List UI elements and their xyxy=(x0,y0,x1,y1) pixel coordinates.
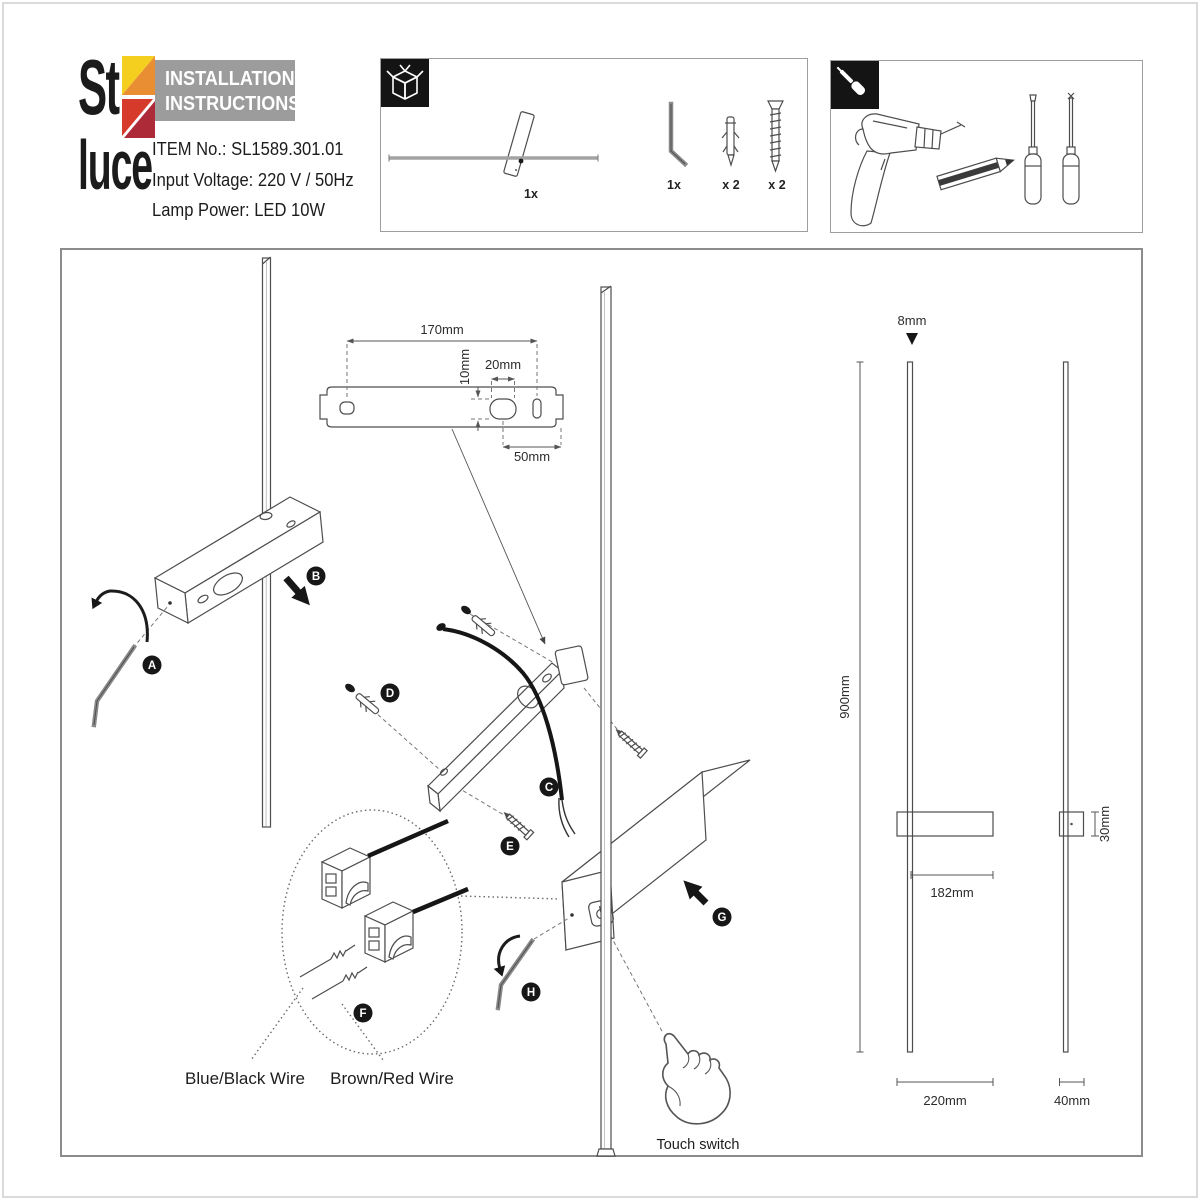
step-label-g: G xyxy=(713,908,732,927)
lamp-illustration xyxy=(389,111,598,176)
step-label-b: B xyxy=(307,567,326,586)
rod-diameter-dim: 8mm xyxy=(898,313,927,328)
power-row: Lamp Power: LED 10W xyxy=(152,195,354,226)
arrow-step-g xyxy=(694,891,706,903)
svg-text:B: B xyxy=(312,571,320,583)
item-number-row: ITEM No.: SL1589.301.01 xyxy=(152,134,354,165)
wall-plug-qty: x 2 xyxy=(722,178,739,192)
pencil-illustration xyxy=(937,154,1016,190)
product-info: ITEM No.: SL1589.301.01 Input Voltage: 2… xyxy=(152,134,371,226)
bracket-hole-width-dim: 20mm xyxy=(485,357,521,372)
bracket-width-dim: 170mm xyxy=(420,322,463,337)
drill-illustration xyxy=(851,114,965,226)
lamp-height-dim: 900mm xyxy=(837,675,852,718)
lamp-qty: 1x xyxy=(524,187,538,201)
hand-illustration xyxy=(663,1034,730,1124)
svg-text:H: H xyxy=(527,987,535,999)
lamp-body-step-ab xyxy=(133,497,323,648)
bracket-top-view: 170mm 10mm 20mm 50mm xyxy=(320,322,563,644)
package-contents-drawing: 1x 1x x 2 x 2 xyxy=(381,59,809,233)
touch-switch-label: Touch switch xyxy=(656,1137,739,1153)
svg-text:F: F xyxy=(359,1008,366,1020)
power-value: LED 10W xyxy=(254,200,325,220)
allen-key-step-a xyxy=(94,591,147,725)
arrow-step-b xyxy=(286,578,300,594)
logo-text-top: St xyxy=(78,52,118,124)
package-contents-panel: 1x 1x x 2 x 2 xyxy=(380,58,808,232)
wall-rod xyxy=(597,286,615,1156)
step-label-d: D xyxy=(381,684,400,703)
step-label-f: F xyxy=(354,1004,373,1023)
item-label: ITEM No.: xyxy=(152,139,227,159)
instructions-header: INSTALLATION INSTRUCTIONS xyxy=(155,60,295,121)
lamp-body-step-gh xyxy=(534,760,750,1033)
side-depth-dim: 40mm xyxy=(1054,1093,1090,1108)
svg-text:G: G xyxy=(718,912,727,924)
stripped-wire-2 xyxy=(312,967,367,999)
blue-black-wire-label: Blue/Black Wire xyxy=(185,1069,305,1088)
allen-key-qty: 1x xyxy=(667,178,681,192)
tools-panel xyxy=(830,60,1143,233)
header-line1: INSTALLATION xyxy=(165,66,279,91)
screwdriver-icon xyxy=(831,61,879,109)
svg-text:C: C xyxy=(545,782,553,794)
header-line2: INSTRUCTIONS xyxy=(165,91,279,116)
voltage-row: Input Voltage: 220 V / 50Hz xyxy=(152,165,354,196)
stripped-wire-1 xyxy=(300,945,355,977)
item-value: SL1589.301.01 xyxy=(231,139,343,159)
step-label-e: E xyxy=(501,837,520,856)
body-width-dim: 182mm xyxy=(930,885,973,900)
allen-key-illustration xyxy=(671,104,685,164)
tools-drawing xyxy=(831,61,1144,234)
step-label-c: C xyxy=(540,778,559,797)
flat-screwdriver-illustration xyxy=(1025,95,1041,204)
bracket-offset-dim: 50mm xyxy=(514,449,550,464)
bracket-hole-height-dim: 10mm xyxy=(457,349,472,385)
front-width-dim: 220mm xyxy=(923,1093,966,1108)
logo-text-bottom: luce xyxy=(78,134,145,197)
svg-text:D: D xyxy=(386,688,394,700)
brown-red-wire-label: Brown/Red Wire xyxy=(330,1069,454,1088)
package-icon xyxy=(381,59,429,107)
installation-diagram: A B 170mm 10mm 20mm 50mm xyxy=(60,248,1143,1157)
svg-text:A: A xyxy=(148,660,156,672)
screw-illustration xyxy=(768,101,783,171)
svg-text:E: E xyxy=(506,841,514,853)
step-label-a: A xyxy=(143,656,162,675)
power-label: Lamp Power: xyxy=(152,200,250,220)
body-height-dim: 30mm xyxy=(1097,806,1112,842)
screw-qty: x 2 xyxy=(768,178,785,192)
voltage-label: Input Voltage: xyxy=(152,170,253,190)
wall-plug-illustration xyxy=(722,117,739,165)
phillips-screwdriver-illustration xyxy=(1063,93,1079,204)
dimension-views: 8mm 900mm 182mm 220mm 30mm 40mm xyxy=(837,313,1112,1108)
voltage-value: 220 V / 50Hz xyxy=(258,170,354,190)
step-label-h: H xyxy=(522,983,541,1002)
